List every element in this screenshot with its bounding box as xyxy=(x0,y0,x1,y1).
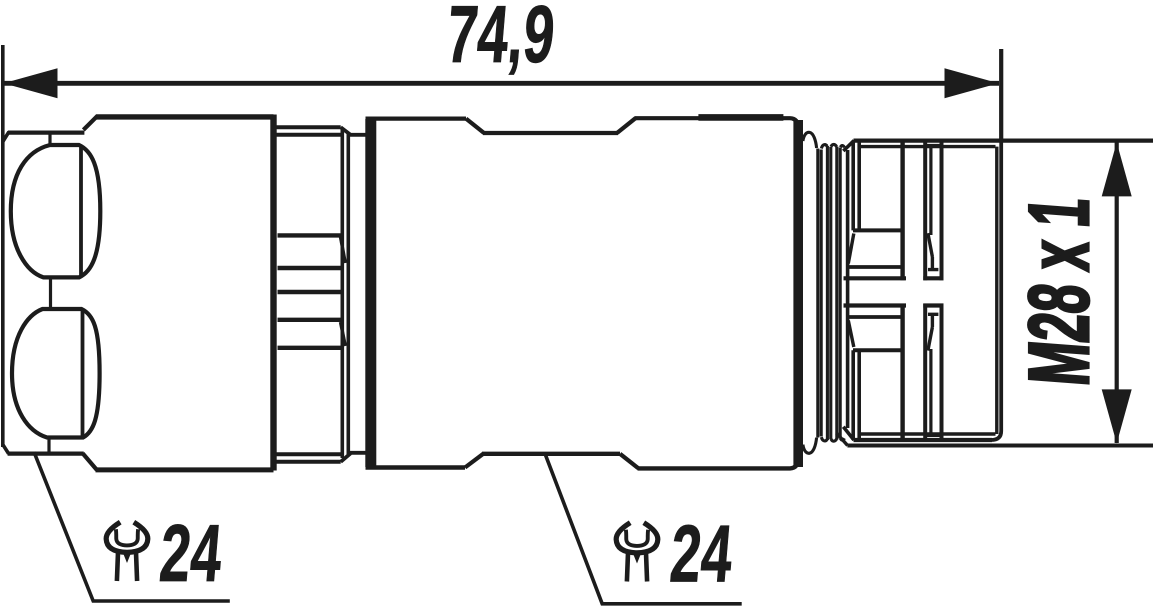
svg-text:24: 24 xyxy=(157,507,226,598)
svg-text:24: 24 xyxy=(667,508,736,599)
svg-text:74,9: 74,9 xyxy=(443,0,558,79)
svg-text:M28 x 1: M28 x 1 xyxy=(1011,194,1106,388)
